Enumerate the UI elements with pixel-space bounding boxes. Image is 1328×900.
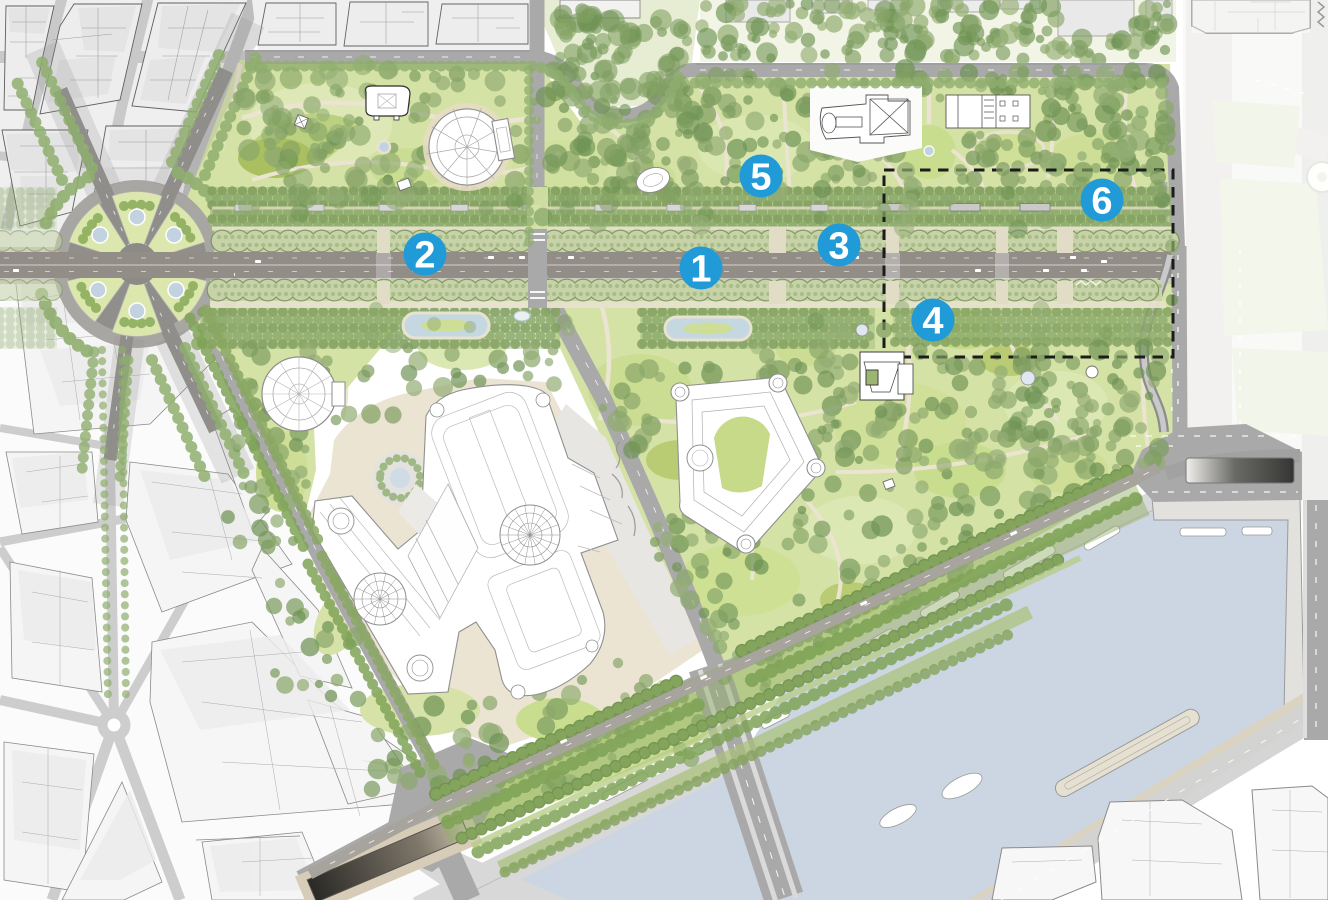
svg-text:1: 1 <box>690 249 711 291</box>
svg-text:2: 2 <box>414 235 435 277</box>
svg-text:3: 3 <box>828 226 849 268</box>
svg-text:5: 5 <box>750 157 771 199</box>
svg-text:6: 6 <box>1091 181 1112 223</box>
svg-text:4: 4 <box>922 301 943 343</box>
